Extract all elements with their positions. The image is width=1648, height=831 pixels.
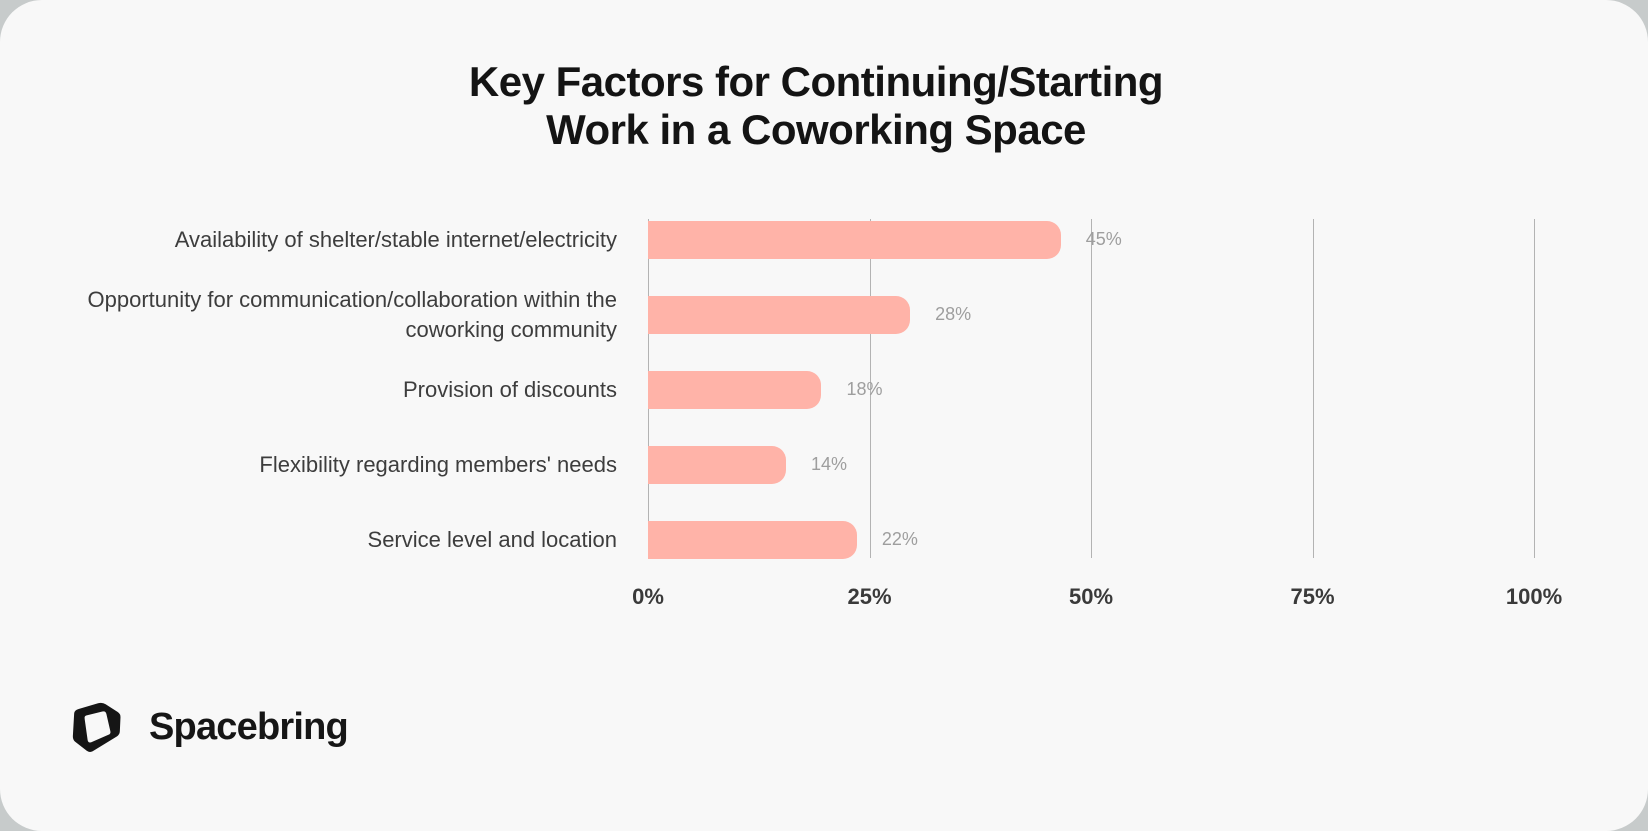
chart-row: Service level and location22% <box>57 502 1591 577</box>
category-label: Availability of shelter/stable internet/… <box>57 225 617 255</box>
chart-title-line1: Key Factors for Continuing/Starting <box>0 58 1640 106</box>
chart-row: Availability of shelter/stable internet/… <box>57 202 1591 277</box>
category-label: Opportunity for communication/collaborat… <box>57 285 617 345</box>
row-plot-area: 45% <box>648 202 1534 277</box>
value-label: 18% <box>846 379 882 400</box>
category-label: Service level and location <box>57 525 617 555</box>
bar <box>648 446 786 484</box>
bar <box>648 296 910 334</box>
infographic-card: Key Factors for Continuing/Starting Work… <box>0 0 1648 831</box>
chart-title: Key Factors for Continuing/Starting Work… <box>0 58 1640 154</box>
bar <box>648 371 821 409</box>
x-tick-label: 0% <box>632 584 664 610</box>
chart-row: Opportunity for communication/collaborat… <box>57 277 1591 352</box>
chart-row: Provision of discounts18% <box>57 352 1591 427</box>
value-label: 45% <box>1086 229 1122 250</box>
category-label: Flexibility regarding members' needs <box>57 450 617 480</box>
row-plot-area: 28% <box>648 277 1534 352</box>
row-plot-area: 22% <box>648 502 1534 577</box>
row-plot-area: 14% <box>648 427 1534 502</box>
x-tick-label: 25% <box>847 584 891 610</box>
value-label: 22% <box>882 529 918 550</box>
bar <box>648 221 1061 259</box>
category-label: Provision of discounts <box>57 375 617 405</box>
bar <box>648 521 857 559</box>
chart-row: Flexibility regarding members' needs14% <box>57 427 1591 502</box>
brand-footer: Spacebring <box>70 699 348 756</box>
x-tick-label: 100% <box>1506 584 1562 610</box>
x-axis: 0%25%50%75%100% <box>648 584 1534 612</box>
chart-rows: Availability of shelter/stable internet/… <box>57 202 1591 577</box>
page-background: Key Factors for Continuing/Starting Work… <box>0 0 1648 831</box>
value-label: 28% <box>935 304 971 325</box>
x-tick-label: 75% <box>1290 584 1334 610</box>
value-label: 14% <box>811 454 847 475</box>
chart-title-line2: Work in a Coworking Space <box>0 106 1640 154</box>
row-plot-area: 18% <box>648 352 1534 427</box>
spacebring-logo-icon <box>70 699 124 756</box>
brand-name: Spacebring <box>149 706 348 749</box>
x-tick-label: 50% <box>1069 584 1113 610</box>
